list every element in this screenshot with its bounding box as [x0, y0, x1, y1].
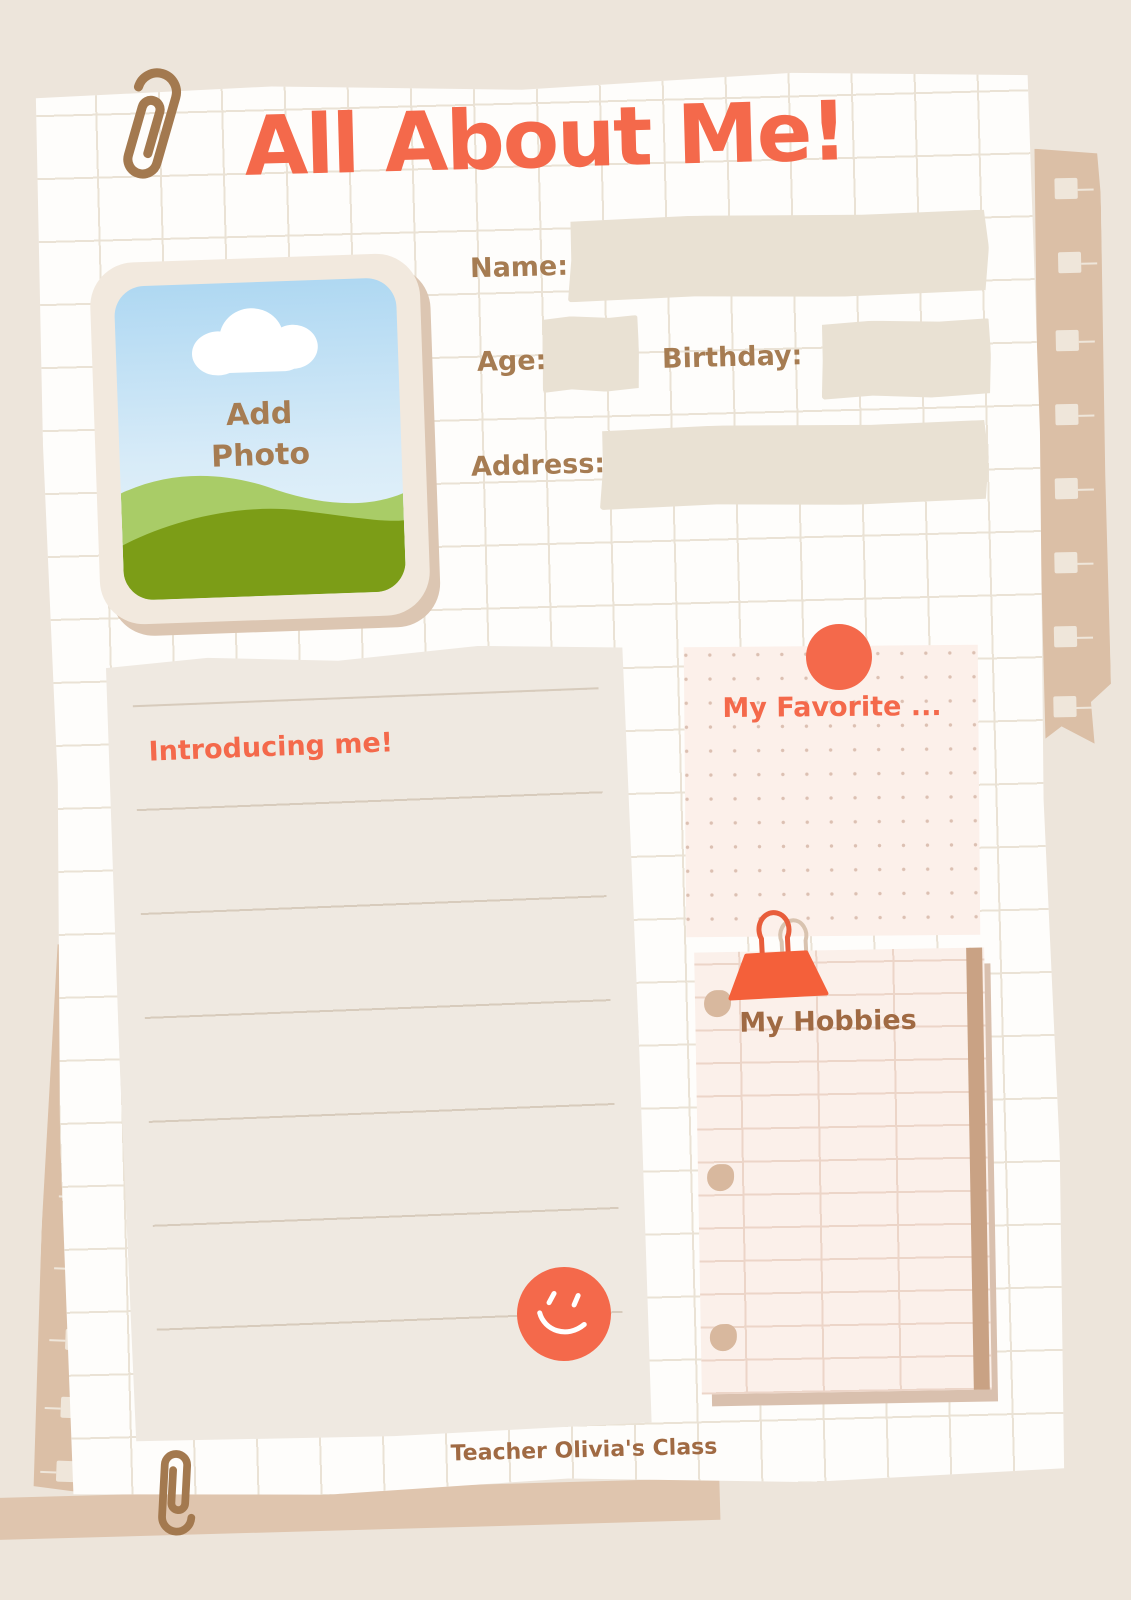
push-pin-icon — [806, 624, 872, 690]
page-title: All About Me! — [189, 83, 901, 197]
age-label: Age: — [477, 345, 547, 378]
punch-hole — [710, 1324, 737, 1351]
add-photo-placeholder[interactable]: Add Photo — [114, 277, 407, 601]
name-label: Name: — [470, 251, 569, 285]
birthday-field[interactable] — [820, 318, 992, 400]
photo-frame: Add Photo — [89, 252, 431, 625]
worksheet-canvas: All About Me! Add Photo Name: Age: Birth… — [0, 0, 1131, 1600]
address-label: Address: — [471, 448, 606, 483]
cloud-icon — [190, 306, 322, 372]
paperclip-icon — [137, 1434, 219, 1550]
my-favorite-title: My Favorite ... — [685, 691, 979, 725]
smiley-face-icon — [507, 1257, 621, 1371]
address-field[interactable] — [598, 420, 990, 510]
add-photo-label: Add Photo — [194, 393, 327, 478]
age-field[interactable] — [541, 315, 640, 393]
my-hobbies-title: My Hobbies — [739, 1005, 917, 1039]
birthday-label: Birthday: — [662, 340, 803, 375]
my-hobbies-paper[interactable]: My Hobbies — [694, 948, 992, 1395]
binder-clip-icon — [717, 893, 834, 1005]
washi-tape-right — [1032, 147, 1112, 744]
name-field[interactable] — [566, 210, 990, 303]
punch-hole — [707, 1164, 734, 1191]
